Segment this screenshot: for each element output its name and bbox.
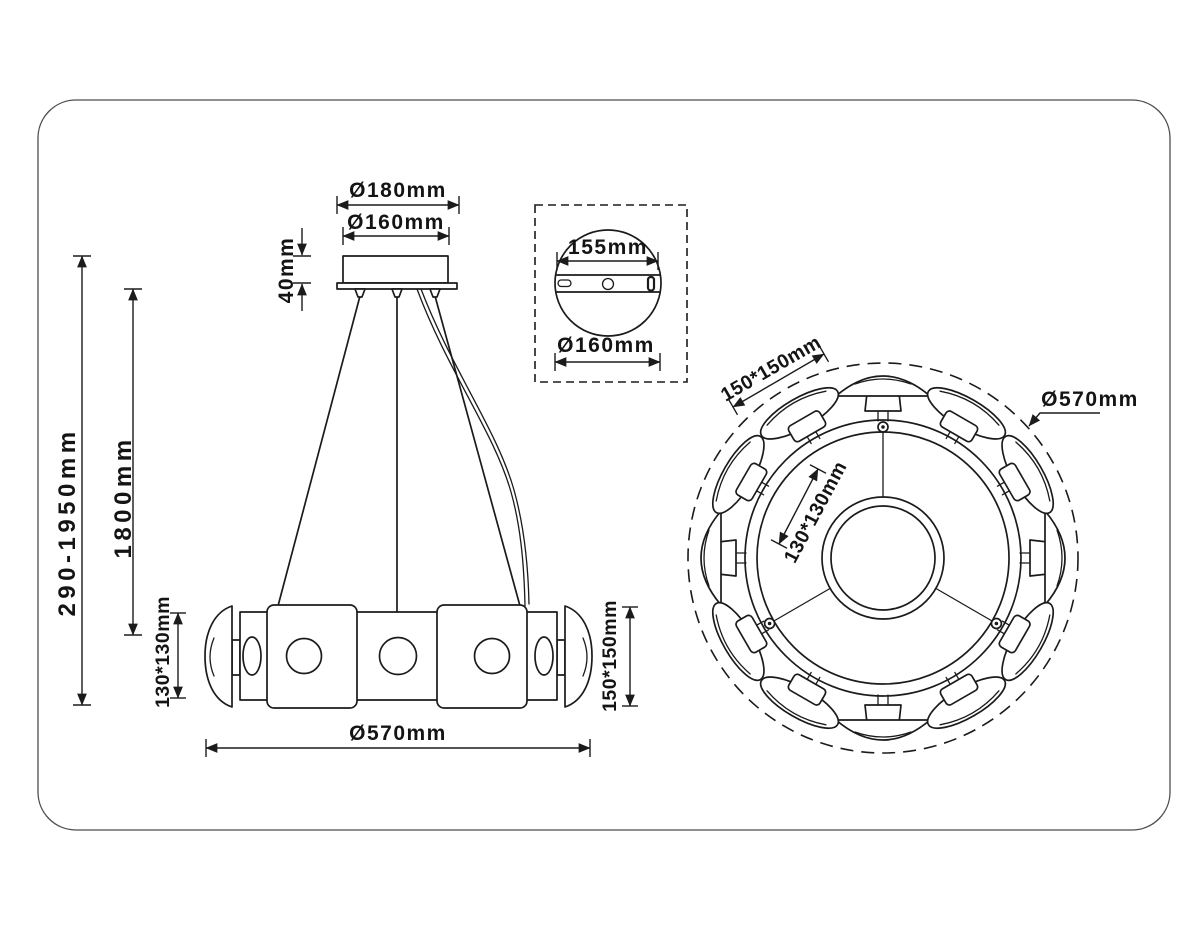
shade-unit [754,378,854,463]
shade-unit [836,695,930,740]
shade-unit [912,378,1012,463]
dim-canopy-height: 40mm [275,228,311,311]
dim-body-height: 150*150mm [599,600,638,712]
top-view: 150*150mm 130*130mm Ø570mm [688,331,1139,753]
technical-drawing-page: Ø180mm Ø160mm 40mm 290-1950mm [0,0,1200,933]
cable-left [278,296,360,606]
dim-label-bracket-width: 155mm [568,236,648,259]
dim-label-body-diameter: Ø570mm [349,722,447,745]
shade-unit [836,376,930,421]
screw-slot [648,277,654,291]
shade-unit [703,429,788,529]
left-shade-connector [232,640,240,675]
right-shade-connector [557,640,565,675]
screw-dot [768,622,772,626]
lamp-dimension-drawing: Ø180mm Ø160mm 40mm 290-1950mm [0,0,1200,933]
dim-label-body-height: 150*150mm [599,600,621,712]
dim-suspension-length: 1800mm [110,289,142,635]
side-shade-right [565,606,592,707]
band-oval-right [535,637,553,675]
dim-label-top-outer-diameter: Ø570mm [1041,388,1139,411]
dim-label-canopy-height: 40mm [275,237,298,304]
shade-unit [978,587,1063,687]
dim-label-overall-height: 290-1950mm [54,427,81,616]
center-ring-outer [822,497,944,619]
spoke [770,589,830,624]
shade-unit [701,511,746,605]
band-oval-left [243,637,261,675]
dim-overall-height: 290-1950mm [54,256,91,705]
dim-canopy-inner: Ø160mm [343,211,449,245]
dim-body-diameter: Ø570mm [206,722,590,757]
screw-dot [995,622,999,626]
dim-band-height: 130*130mm [152,596,186,708]
shade-unit [754,653,854,738]
cable-right [435,296,520,606]
shade-unit [703,587,788,687]
dim-top-outer-diameter: Ø570mm [1029,388,1139,426]
dim-label-canopy-inner: Ø160mm [347,211,445,234]
dim-canopy-outer: Ø180mm [337,179,459,214]
side-shade-left [205,606,232,707]
power-cord [417,289,525,606]
shade-unit [912,653,1012,738]
cable-gripper [430,289,440,297]
ceiling-canopy [343,256,448,283]
canopy-detail-inset: 155mm Ø160mm [535,205,687,382]
dim-label-band-height: 130*130mm [152,596,174,708]
screw-dot [881,425,885,429]
dim-label-canopy-outer: Ø180mm [349,179,447,202]
shade-unit [978,429,1063,529]
dim-plate-diameter: Ø160mm [555,334,660,371]
canopy-base-plate [337,283,457,289]
cable-gripper [392,289,402,297]
lamp-opening-right [475,639,510,674]
shade-unit [1020,511,1065,605]
drawing-frame [38,100,1170,830]
dim-label-suspension-length: 1800mm [110,435,137,558]
spoke [936,589,996,624]
dim-label-plate-diameter: Ø160mm [557,334,655,357]
lamp-opening-center [380,638,417,675]
lamp-opening-left [287,639,322,674]
front-view: Ø180mm Ø160mm 40mm 290-1950mm [54,179,638,757]
cable-gripper [355,289,365,297]
